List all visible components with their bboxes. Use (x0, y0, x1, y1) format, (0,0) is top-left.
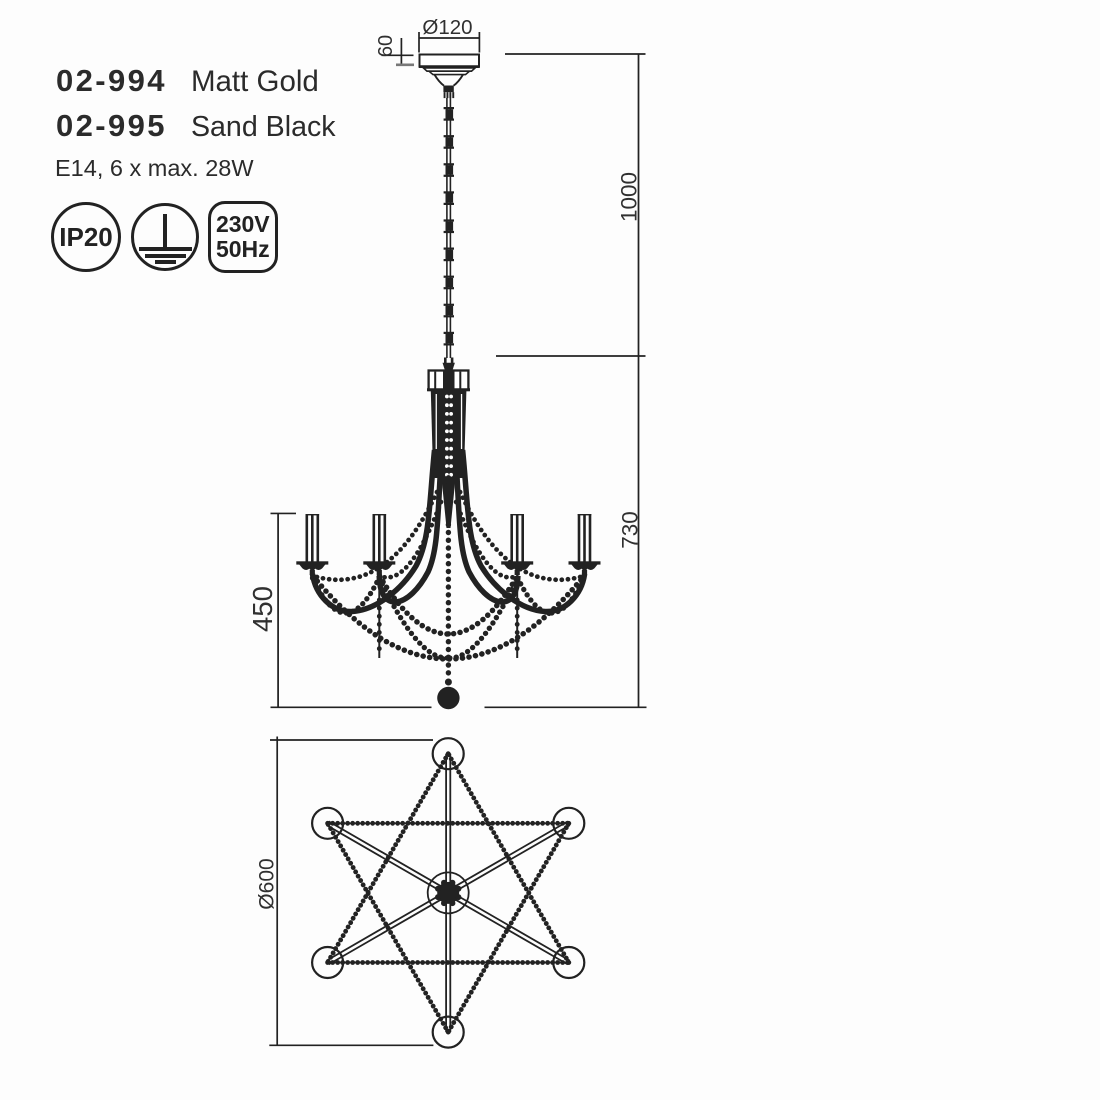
svg-text:Ø120: Ø120 (422, 16, 472, 39)
svg-text:1000: 1000 (617, 172, 642, 222)
svg-text:Ø600: Ø600 (256, 858, 279, 909)
svg-text:60: 60 (375, 35, 397, 57)
svg-text:730: 730 (618, 511, 643, 549)
svg-text:450: 450 (247, 586, 278, 632)
